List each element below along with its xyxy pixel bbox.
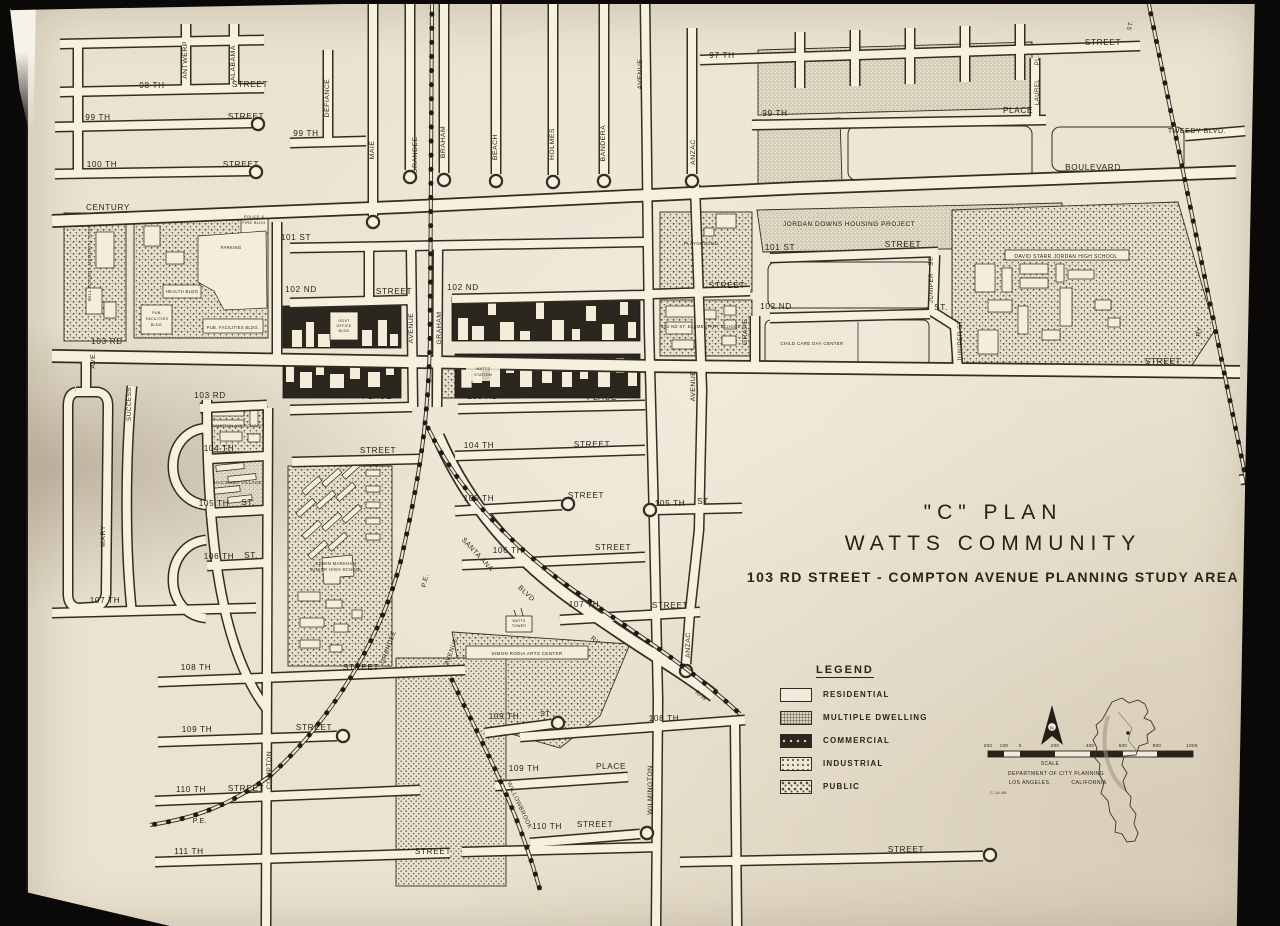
map-label: PLACE (596, 762, 626, 771)
scale-tick: 600 (1119, 743, 1128, 748)
map-label: JORDAN DOWNS HOUSING PROJECT (783, 221, 915, 228)
multiple-swatch (780, 711, 812, 725)
map-label: WATTS (512, 619, 526, 623)
map-label: DEFIANCE (324, 79, 331, 118)
map-label: HACIENDA VILLAGE (214, 480, 262, 485)
map-label: MAIE (369, 141, 376, 160)
map-label: FIRE BLDG (242, 220, 265, 225)
map-label: BEACH (492, 134, 499, 160)
page-curl-shadow (0, 0, 46, 926)
map-label: STREET (343, 663, 379, 672)
map-label: BLVD (516, 584, 535, 603)
legend-block: LEGEND RESIDENTIALMULTIPLE DWELLINGCOMME… (780, 660, 990, 793)
scale-tick-labels: 20010002004006008001000 (984, 743, 1198, 748)
map-title-line2: WATTS COMMUNITY (718, 532, 1268, 556)
map-label: STREET (577, 820, 613, 829)
map-label: GRANDEE (412, 136, 419, 173)
map-label: ANZAC (690, 139, 697, 165)
map-label: 105 TH (199, 499, 230, 508)
map-label: STREET (1085, 38, 1121, 47)
scale-tick: 100 (1000, 743, 1009, 748)
scale-tick: 200 (1051, 743, 1060, 748)
map-label: DEPARTMENT OF CITY PLANNING (1008, 771, 1104, 777)
map-label: FACILITIES (146, 317, 169, 321)
legend-label: COMMERCIAL (823, 736, 890, 745)
map-label: MARY (100, 525, 107, 547)
map-label: PL. (1035, 55, 1041, 65)
watts-tower-icon (514, 608, 523, 616)
district-playground (660, 212, 752, 292)
map-label: TWEEDY BLVD. (1168, 128, 1226, 135)
map-label: LAUREL (1035, 79, 1041, 105)
map-label: STREET (376, 287, 412, 296)
map-label: CENTURY (86, 203, 130, 212)
map-label: 106 TH (204, 552, 235, 561)
map-label: STREET (888, 845, 924, 854)
legend-item: MULTIPLE DWELLING (780, 711, 990, 724)
north-label: N (1050, 725, 1054, 731)
map-label: ST. (1127, 20, 1135, 31)
map-label: STREET (568, 491, 604, 500)
map-label: 101 ST (765, 243, 795, 252)
map-label: 109 TH (182, 725, 213, 734)
map-label: 104 TH (464, 441, 495, 450)
map-label: 100 TH (87, 160, 118, 169)
map-label: 108 TH (649, 714, 680, 723)
map-label: BLDG. (151, 323, 164, 327)
commercial-swatch (780, 734, 812, 748)
map-label: BRAHAM (440, 126, 447, 158)
map-label: 110 TH (176, 785, 206, 794)
legend-item: COMMERCIAL (780, 734, 990, 747)
map-label: AVE. (90, 351, 97, 368)
legend-label: RESIDENTIAL (823, 690, 890, 699)
legend-item: PUBLIC (780, 780, 990, 793)
scale-tick: 400 (1086, 743, 1095, 748)
map-label: PUB. FACILITIES BLDG. (207, 325, 260, 330)
map-label: 108 TH (181, 663, 212, 672)
map-label: SIMON RODIA ARTS CENTER (492, 651, 563, 656)
map-label: DAVID STARR JORDAN HIGH SCHOOL (1014, 254, 1117, 260)
scale-bar: 20010002004006008001000 (984, 743, 1198, 757)
map-label: P.E. (193, 818, 208, 825)
map-sheet-paper: 20010002004006008001000 N 97 THSTREET98 … (28, 4, 1260, 926)
district-will-rogers-park (64, 213, 126, 341)
map-label: 111 TH (174, 847, 203, 856)
map-label: PLACE (362, 392, 392, 401)
map-label: 98 TH (139, 81, 164, 90)
map-label: HEALTH BLDG (166, 289, 198, 294)
map-label: STREET (709, 281, 745, 290)
map-label: OFFICE (337, 324, 352, 328)
map-label: AVENUE (408, 313, 415, 344)
map-label: 99 TH (85, 113, 110, 122)
map-label: CHILD CARE DAY CENTER (780, 341, 843, 346)
map-label: PARKING (221, 245, 242, 250)
legend-label: PUBLIC (823, 782, 860, 791)
map-label: STREET (1145, 357, 1181, 366)
map-label: HOLMES (549, 128, 556, 160)
map-label: COMPTON (266, 751, 273, 789)
map-label: P.E. (421, 573, 431, 588)
map-label: ST. (244, 551, 258, 560)
map-label: STATION (474, 373, 492, 377)
north-arrow-icon: N (1041, 705, 1063, 745)
map-label: 103 RD (194, 391, 226, 400)
legend-item: INDUSTRIAL (780, 757, 990, 770)
map-label: STREET (574, 440, 610, 449)
map-label: GRAHAM (436, 311, 443, 344)
map-label: JUNIOR HIGH SCHOOL (310, 567, 362, 572)
map-label: 102 ND (760, 302, 792, 311)
map-label: 99 TH (293, 129, 318, 138)
scale-tick: 800 (1153, 743, 1162, 748)
map-label: POLICE & (244, 214, 265, 219)
planning-map: 20010002004006008001000 N 97 THSTREET98 … (28, 4, 1260, 926)
industrial-swatch (780, 757, 812, 771)
la-city-outline-map (1093, 698, 1155, 842)
legend-label: INDUSTRIAL (823, 759, 883, 768)
map-label: 109 TH (509, 764, 540, 773)
map-label: WILL ROGERS MEMORIAL PARK (87, 225, 92, 301)
map-label: ANZAC (685, 632, 692, 658)
map-label: BLDG (339, 329, 350, 333)
map-label: AVENUE (690, 371, 697, 402)
map-label: C-14-65 (990, 790, 1007, 795)
map-label: 97 TH (709, 51, 734, 60)
map-label: SCALE (1041, 761, 1060, 767)
map-label: JUNIPER ST. (957, 318, 964, 361)
map-label: STREET (415, 847, 451, 856)
map-label: STREET (885, 240, 921, 249)
map-label: STREET (228, 784, 264, 793)
map-label: PLAYGROUND (684, 241, 718, 246)
map-label: STREET (223, 160, 259, 169)
map-label: GOVT (338, 319, 350, 323)
map-label: ANTWERP (182, 41, 189, 79)
map-label: 107 TH (569, 600, 600, 609)
map-label: ST (540, 711, 550, 718)
map-label: STREET (360, 446, 396, 455)
residential-swatch (780, 688, 812, 702)
map-label: 106 TH (493, 546, 524, 555)
map-label: GRAPE (742, 319, 749, 346)
watts-location-dot (1126, 731, 1129, 734)
map-label: WILMINGTON (647, 765, 654, 815)
map-label: 110 TH (532, 822, 562, 831)
map-label: AVENUE (637, 59, 644, 90)
map-label: 102 ND ST. ELEMENTARY SCHOOL (662, 324, 741, 329)
map-label: CALIFORNIA (1071, 780, 1106, 786)
legend-title: LEGEND (816, 664, 874, 678)
legend-items: RESIDENTIALMULTIPLE DWELLINGCOMMERCIALIN… (780, 688, 990, 793)
map-label: WATTS (476, 367, 491, 371)
scale-tick: 0 (1019, 743, 1022, 748)
map-label: 103 RD (467, 392, 499, 401)
map-label: STREET (595, 543, 631, 552)
map-label: STREET (228, 112, 264, 121)
title-block: "C" PLAN WATTS COMMUNITY 103 RD STREET -… (718, 501, 1268, 585)
map-label: TOWER (512, 624, 527, 628)
map-label: BANDERA (600, 125, 607, 162)
scale-tick: 1000 (1186, 743, 1198, 748)
map-label: ST. (697, 497, 711, 506)
map-label: 105 TH (464, 494, 495, 503)
public-swatch (780, 780, 812, 794)
map-label: 103 RD (91, 337, 123, 346)
map-label: COMPTON AVE SCHOOL (211, 423, 263, 428)
map-title-line1: "C" PLAN (718, 501, 1268, 525)
map-label: 104 TH (204, 444, 235, 453)
map-label: SUCCESS (126, 387, 133, 421)
map-label: ST. (929, 256, 935, 266)
map-label: LOS ANGELES, (1009, 780, 1051, 786)
map-label: ST. (934, 303, 948, 312)
legend-item: RESIDENTIAL (780, 688, 990, 701)
map-label: 109 TH (489, 712, 520, 721)
map-label: ST. (241, 498, 255, 507)
map-label: PUB. (152, 311, 162, 315)
map-title-line3: 103 RD STREET - COMPTON AVENUE PLANNING … (718, 569, 1268, 585)
map-label: 102 ND (447, 283, 479, 292)
map-label: PLACE (587, 393, 617, 402)
legend-label: MULTIPLE DWELLING (823, 713, 928, 722)
photographed-book-page: 20010002004006008001000 N 97 THSTREET98 … (0, 0, 1280, 926)
map-label: BOULEVARD (1065, 163, 1121, 172)
map-label: 107 TH (90, 596, 121, 605)
map-label: 101 ST (281, 233, 311, 242)
map-label: PLACE (1003, 106, 1033, 115)
map-label: JUNIPER (928, 273, 935, 303)
map-label: 105 TH (655, 499, 686, 508)
map-label: ALABAMA (230, 45, 237, 81)
map-label: 102 ND (285, 285, 317, 294)
map-label: 99 TH (762, 109, 787, 118)
map-label: STREET (296, 723, 332, 732)
map-label: EDWIN MARKHAM (316, 561, 357, 566)
map-label: STREET (232, 80, 268, 89)
map-label: STREET (652, 601, 688, 610)
